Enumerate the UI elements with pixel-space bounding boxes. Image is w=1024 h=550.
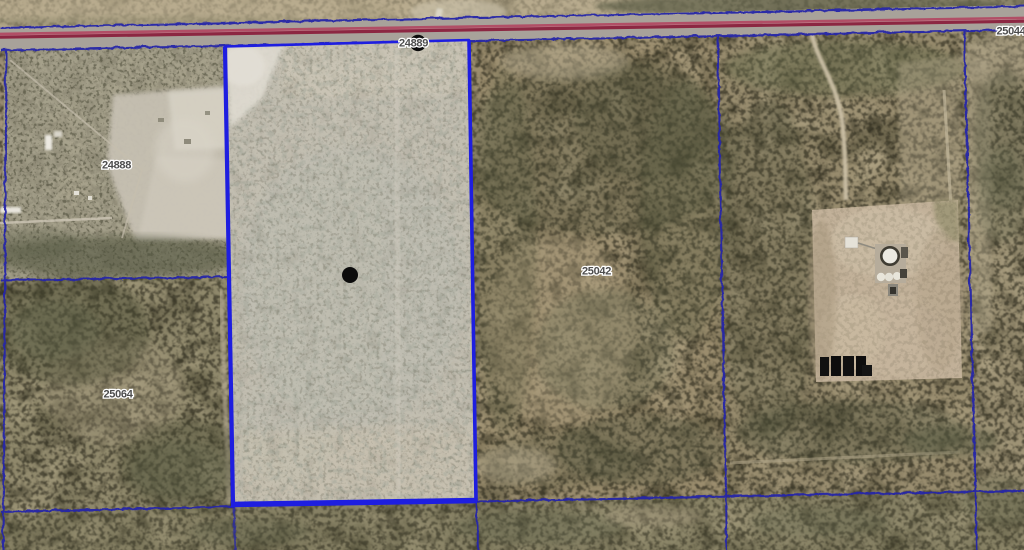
svg-text:25044: 25044: [996, 26, 1024, 38]
svg-text:25042: 25042: [582, 266, 611, 278]
svg-text:24889: 24889: [399, 38, 428, 50]
svg-text:24888: 24888: [102, 160, 131, 172]
svg-text:25064: 25064: [103, 389, 133, 401]
